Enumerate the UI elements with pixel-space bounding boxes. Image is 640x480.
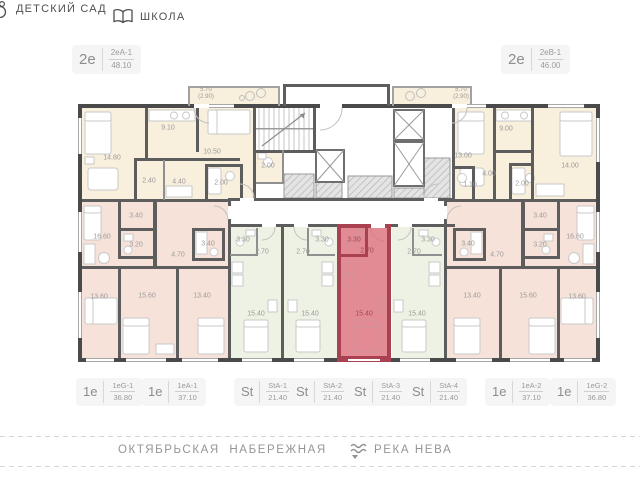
unit-code: StA-3 xyxy=(379,381,402,392)
unit-code: 1еА-2 xyxy=(519,381,543,392)
bottom-boundary-line xyxy=(0,466,640,467)
unit-code: StA-4 xyxy=(437,381,460,392)
unit-code: StA-2 xyxy=(321,381,344,392)
unit-type: St xyxy=(241,385,253,398)
unit-area: 21.40 xyxy=(439,393,458,402)
unit-code: StA-1 xyxy=(266,381,289,392)
staircase xyxy=(256,108,316,150)
unit-chip-sta-4[interactable]: St StA-4 21.40 xyxy=(405,378,467,406)
unit-type: 1е xyxy=(148,385,162,398)
street-boundary-line xyxy=(0,436,640,437)
unit-area: 37.10 xyxy=(178,393,197,402)
chip-divider xyxy=(512,381,513,403)
unit-type: St xyxy=(354,385,366,398)
chip-divider xyxy=(430,381,431,403)
unit-chip-1eg-2[interactable]: 1е 1еG-2 36.80 xyxy=(550,378,616,406)
unit-area: 21.40 xyxy=(268,393,287,402)
unit-type: 1е xyxy=(492,385,506,398)
unit-type: 1е xyxy=(83,385,97,398)
unit-code: 1еА-1 xyxy=(175,381,199,392)
unit-chip-sta-3[interactable]: St StA-3 21.40 xyxy=(347,378,409,406)
unit-area: 21.40 xyxy=(323,393,342,402)
unit-code: 1еG-1 xyxy=(110,381,135,392)
chip-divider xyxy=(577,381,578,403)
unit-type: St xyxy=(296,385,308,398)
chip-divider xyxy=(103,381,104,403)
chip-divider xyxy=(372,381,373,403)
floorplan-page: ДЕТСКИЙ САД ШКОЛА 2е 2еА-1 48.10 2е 2еВ-… xyxy=(0,0,640,480)
street-name: ОКТЯБРЬСКАЯ НАБЕРЕЖНАЯ xyxy=(118,444,327,456)
unit-chip-1eg-1[interactable]: 1е 1еG-1 36.80 xyxy=(76,378,142,406)
unit-area: 36.80 xyxy=(114,393,133,402)
unit-chip-1ea-1[interactable]: 1е 1еА-1 37.10 xyxy=(141,378,206,406)
unit-area: 21.40 xyxy=(381,393,400,402)
unit-type: 1е xyxy=(557,385,571,398)
river-name: РЕКА НЕВА xyxy=(374,444,452,456)
floor-plan-svg[interactable] xyxy=(0,0,640,480)
unit-chip-sta-2[interactable]: St StA-2 21.40 xyxy=(289,378,351,406)
chip-divider xyxy=(259,381,260,403)
river-icon xyxy=(349,442,369,461)
chip-divider xyxy=(314,381,315,403)
chip-divider xyxy=(168,381,169,403)
elevator-shafts xyxy=(316,110,424,186)
unit-type: St xyxy=(412,385,424,398)
unit-chip-sta-1[interactable]: St StA-1 21.40 xyxy=(234,378,296,406)
unit-chip-1ea-2[interactable]: 1е 1еА-2 37.10 xyxy=(485,378,550,406)
unit-area: 37.10 xyxy=(522,393,541,402)
unit-code: 1еG-2 xyxy=(584,381,609,392)
selected-unit-sta-3[interactable] xyxy=(339,224,392,362)
unit-area: 36.80 xyxy=(588,393,607,402)
